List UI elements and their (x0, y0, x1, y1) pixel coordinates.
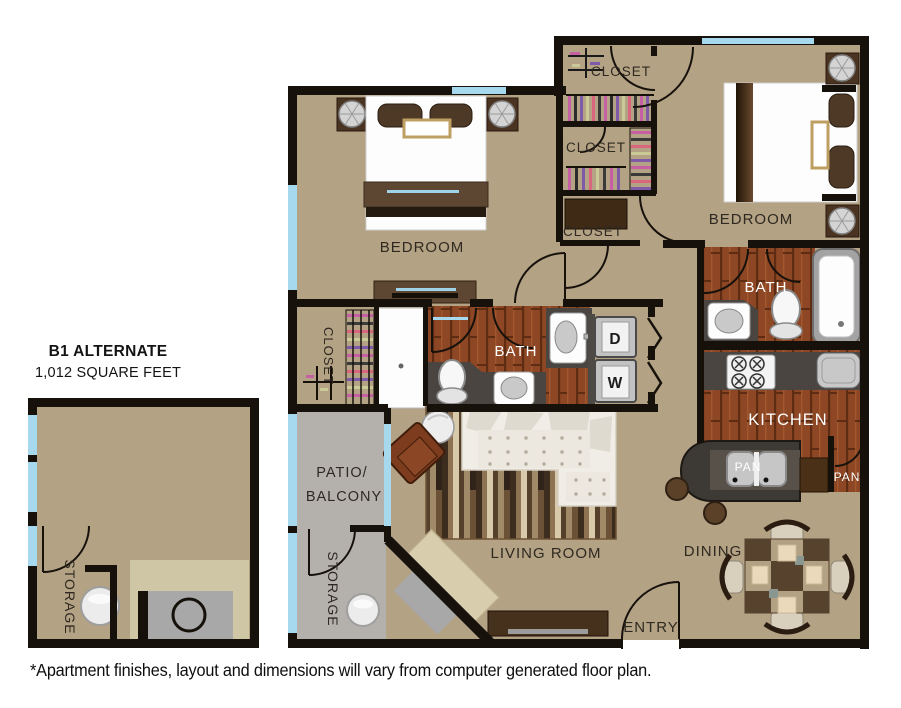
label-dryer: D (609, 331, 620, 348)
bed-runner (364, 182, 488, 207)
label-pan-sink: PAN (735, 460, 762, 474)
bed-footboard (736, 83, 753, 202)
towel-bar (432, 317, 468, 320)
seat-cushion (478, 430, 590, 468)
window (702, 38, 814, 44)
tv (508, 629, 588, 634)
window (452, 87, 506, 94)
window (288, 414, 297, 526)
place-setting (778, 545, 796, 561)
label-patio-1: PATIO/ (316, 465, 367, 481)
cabinet (800, 458, 828, 492)
hall-door-panel (378, 308, 425, 408)
window (288, 533, 297, 633)
label-storage-unit: STORAGE (62, 559, 78, 634)
label-pantry: PAN (834, 470, 861, 484)
patio-storage (347, 594, 379, 626)
label-bath-ensuite: BATH (745, 279, 788, 296)
disclaimer: *Apartment finishes, layout and dimensio… (30, 660, 890, 681)
label-dining: DINING (684, 543, 743, 560)
label-kitchen: KITCHEN (748, 411, 827, 429)
window (28, 526, 37, 566)
pillow (829, 94, 854, 127)
floorplan-svg: BEDROOM BEDROOM CLOSET CLOSET CLOSET CLO… (0, 0, 901, 708)
place-setting (752, 566, 768, 584)
disclaimer-text: *Apartment finishes, layout and dimensio… (30, 660, 651, 681)
label-washer: W (608, 375, 623, 392)
label-closet-mid: CLOSET (566, 140, 626, 155)
window (28, 415, 37, 455)
label-bath-main: BATH (495, 343, 538, 360)
label-bedroom-right: BEDROOM (709, 211, 794, 228)
bed-tray (404, 120, 450, 137)
label-closet-hall: CLOSET (563, 224, 623, 239)
bar-stool (666, 478, 688, 500)
label-entry: ENTRY (623, 619, 679, 636)
label-patio-2: BALCONY (306, 489, 382, 505)
label-bedroom-left: BEDROOM (380, 239, 465, 256)
window (288, 185, 297, 290)
place-setting (806, 566, 822, 584)
sliding-door (384, 424, 391, 526)
water-heater (347, 594, 379, 626)
chaise-cushion (566, 472, 610, 502)
bar-stool (704, 502, 726, 524)
label-closet-inner: CLOSET (321, 327, 336, 385)
pillow (829, 146, 854, 188)
entry-threshold (621, 639, 681, 649)
window (28, 462, 37, 512)
label-storage-patio: STORAGE (325, 551, 341, 626)
door-knob (399, 364, 404, 369)
place-setting (778, 597, 796, 613)
floorplan-page: B1 ALTERNATE 1,012 SQUARE FEET (0, 0, 901, 708)
bed-tray (812, 122, 828, 168)
label-closet-top: CLOSET (591, 64, 651, 79)
label-living-room: LIVING ROOM (490, 545, 601, 562)
